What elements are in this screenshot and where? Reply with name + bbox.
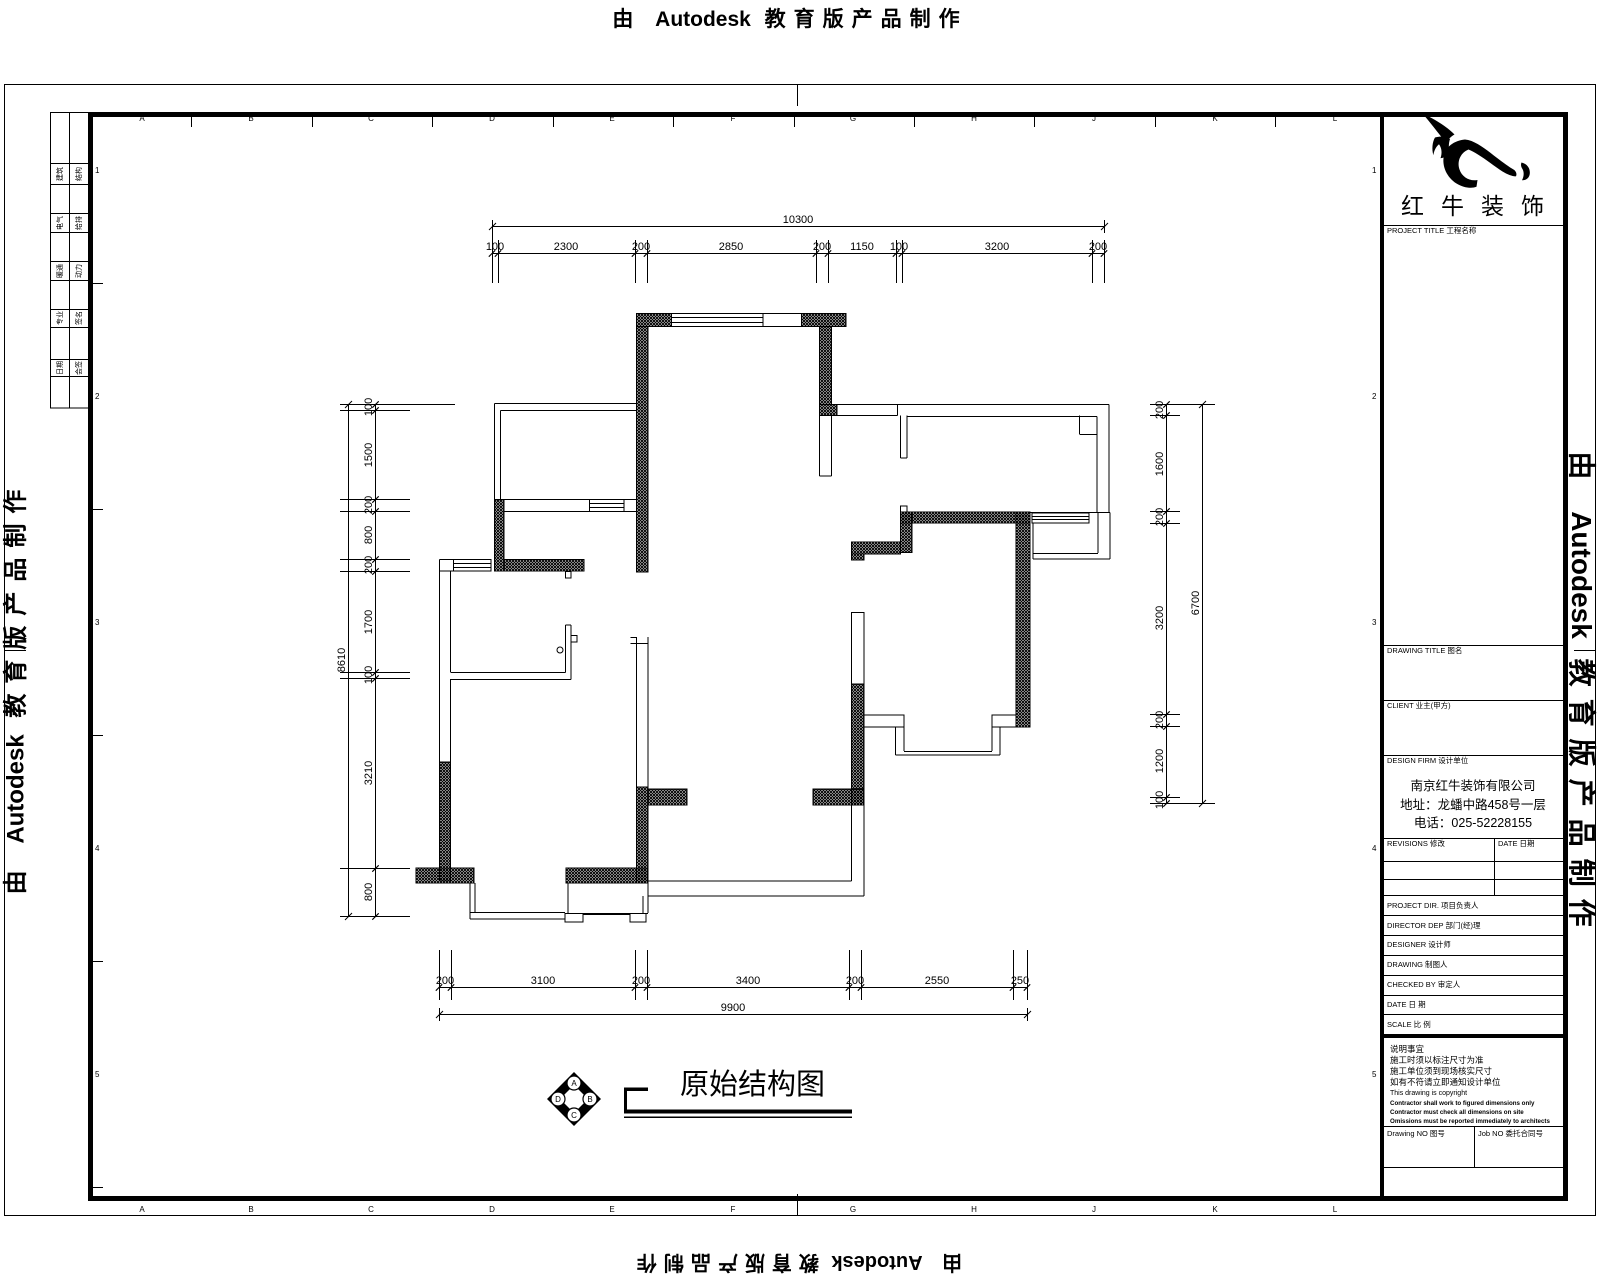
svg-text:200: 200 [813, 241, 831, 253]
svg-text:2: 2 [1372, 392, 1377, 401]
svg-text:REVISIONS 修改: REVISIONS 修改 [1387, 838, 1445, 848]
svg-text:200: 200 [632, 241, 650, 253]
svg-text:DRAWING 制图人: DRAWING 制图人 [1387, 959, 1448, 969]
svg-text:1: 1 [1372, 166, 1377, 175]
svg-text:DRAWING TITLE 图名: DRAWING TITLE 图名 [1387, 645, 1462, 655]
svg-text:1700: 1700 [363, 610, 375, 634]
svg-text:3: 3 [1372, 618, 1377, 627]
svg-text:200: 200 [363, 556, 375, 574]
svg-text:G: G [850, 1205, 856, 1214]
svg-text:800: 800 [363, 883, 375, 901]
svg-text:200: 200 [436, 975, 454, 987]
svg-text:结构: 结构 [74, 167, 83, 181]
svg-text:200: 200 [363, 496, 375, 514]
svg-text:800: 800 [363, 526, 375, 544]
svg-text:6700: 6700 [1190, 591, 1202, 615]
svg-text:建筑: 建筑 [55, 167, 64, 181]
svg-text:A: A [139, 114, 145, 123]
svg-text:9900: 9900 [721, 1002, 745, 1014]
svg-text:3100: 3100 [531, 975, 555, 987]
svg-text:专业: 专业 [55, 311, 64, 325]
svg-text:200: 200 [1154, 401, 1166, 419]
svg-text:1150: 1150 [850, 241, 874, 253]
svg-text:暖通: 暖通 [55, 264, 64, 278]
svg-text:1600: 1600 [1154, 452, 1166, 476]
svg-text:H: H [971, 1205, 977, 1214]
svg-text:Omissions must be reported imm: Omissions must be reported immediately t… [1390, 1118, 1550, 1125]
svg-text:会签: 会签 [74, 361, 83, 375]
svg-text:E: E [609, 114, 614, 123]
svg-text:给排: 给排 [74, 216, 83, 230]
svg-text:3: 3 [95, 618, 100, 627]
svg-text:动力: 动力 [74, 264, 83, 278]
svg-text:D: D [489, 114, 495, 123]
svg-text:4: 4 [95, 844, 100, 853]
svg-text:DESIGNER 设计师: DESIGNER 设计师 [1387, 939, 1451, 949]
svg-text:F: F [731, 1205, 736, 1214]
svg-text:Contractor shall work to figur: Contractor shall work to figured dimensi… [1390, 1100, 1535, 1107]
svg-text:原始结构图: 原始结构图 [680, 1068, 825, 1101]
svg-text:8610: 8610 [336, 648, 348, 672]
svg-text:B: B [248, 114, 253, 123]
svg-text:D: D [555, 1095, 561, 1104]
svg-text:Contractor must check all dime: Contractor must check all dimensions on … [1390, 1109, 1524, 1116]
svg-text:2: 2 [95, 392, 100, 401]
svg-text:A: A [139, 1205, 145, 1214]
svg-text:电话：025-52228155: 电话：025-52228155 [1414, 816, 1532, 830]
svg-text:K: K [1212, 114, 1218, 123]
svg-text:250: 250 [1011, 975, 1029, 987]
svg-text:J: J [1092, 114, 1096, 123]
svg-text:CHECKED BY 审定人: CHECKED BY 审定人 [1387, 979, 1461, 989]
svg-text:L: L [1333, 1205, 1338, 1214]
svg-text:DIRECTOR DEP 部门(经)理: DIRECTOR DEP 部门(经)理 [1387, 920, 1481, 930]
svg-text:D: D [489, 1205, 495, 1214]
svg-text:L: L [1333, 114, 1338, 123]
svg-text:C: C [368, 114, 374, 123]
svg-text:DATE 日期: DATE 日期 [1498, 839, 1535, 848]
svg-text:4: 4 [1372, 844, 1377, 853]
svg-text:2300: 2300 [554, 241, 578, 253]
svg-text:DESIGN FIRM 设计单位: DESIGN FIRM 设计单位 [1387, 755, 1469, 765]
svg-text:A: A [571, 1079, 577, 1088]
svg-text:SCALE 比 例: SCALE 比 例 [1387, 1019, 1431, 1029]
svg-text:200: 200 [1154, 711, 1166, 729]
svg-text:3210: 3210 [363, 761, 375, 785]
svg-text:电气: 电气 [55, 216, 64, 230]
svg-text:200: 200 [1089, 241, 1107, 253]
svg-text:施工单位须到现场核实尺寸: 施工单位须到现场核实尺寸 [1390, 1066, 1493, 1076]
svg-text:200: 200 [632, 975, 650, 987]
svg-text:3200: 3200 [1154, 606, 1166, 630]
svg-text:H: H [971, 114, 977, 123]
svg-text:C: C [571, 1111, 577, 1120]
svg-text:1: 1 [95, 166, 100, 175]
svg-text:3200: 3200 [985, 241, 1009, 253]
svg-text:2850: 2850 [719, 241, 743, 253]
svg-text:5: 5 [95, 1070, 100, 1079]
svg-text:B: B [587, 1095, 592, 1104]
svg-text:G: G [850, 114, 856, 123]
svg-text:Job NO 委托合同号: Job NO 委托合同号 [1478, 1128, 1543, 1138]
svg-text:200: 200 [846, 975, 864, 987]
svg-text:如有不符请立即通知设计单位: 如有不符请立即通知设计单位 [1390, 1077, 1501, 1087]
svg-text:红牛装饰: 红牛装饰 [1401, 193, 1561, 219]
svg-text:E: E [609, 1205, 614, 1214]
svg-text:CLIENT 业主(甲方): CLIENT 业主(甲方) [1387, 700, 1451, 710]
svg-text:1200: 1200 [1154, 749, 1166, 773]
svg-text:施工时须以标注尺寸为准: 施工时须以标注尺寸为准 [1390, 1055, 1484, 1065]
svg-text:地址：龙蟠中路458号一层: 地址：龙蟠中路458号一层 [1400, 797, 1546, 812]
svg-text:DATE 日 期: DATE 日 期 [1387, 1000, 1426, 1009]
svg-text:南京红牛装饰有限公司: 南京红牛装饰有限公司 [1410, 778, 1535, 793]
svg-text:Drawing NO 图号: Drawing NO 图号 [1387, 1129, 1445, 1138]
svg-text:PROJECT DIR. 项目负责人: PROJECT DIR. 项目负责人 [1387, 900, 1479, 910]
svg-text:3400: 3400 [736, 975, 760, 987]
svg-text:J: J [1092, 1205, 1096, 1214]
svg-text:F: F [731, 114, 736, 123]
svg-text:PROJECT TITLE 工程名称: PROJECT TITLE 工程名称 [1387, 225, 1477, 235]
svg-text:This drawing is copyright: This drawing is copyright [1390, 1090, 1467, 1097]
svg-text:B: B [248, 1205, 253, 1214]
svg-text:日期: 日期 [56, 361, 64, 375]
svg-text:10300: 10300 [783, 214, 814, 226]
svg-text:C: C [368, 1205, 374, 1214]
svg-text:1500: 1500 [363, 443, 375, 467]
svg-text:200: 200 [1154, 508, 1166, 526]
svg-text:K: K [1212, 1205, 1218, 1214]
svg-text:签名: 签名 [74, 311, 83, 325]
svg-text:5: 5 [1372, 1070, 1377, 1079]
svg-text:说明事宜: 说明事宜 [1390, 1044, 1425, 1054]
svg-text:2550: 2550 [925, 975, 949, 987]
